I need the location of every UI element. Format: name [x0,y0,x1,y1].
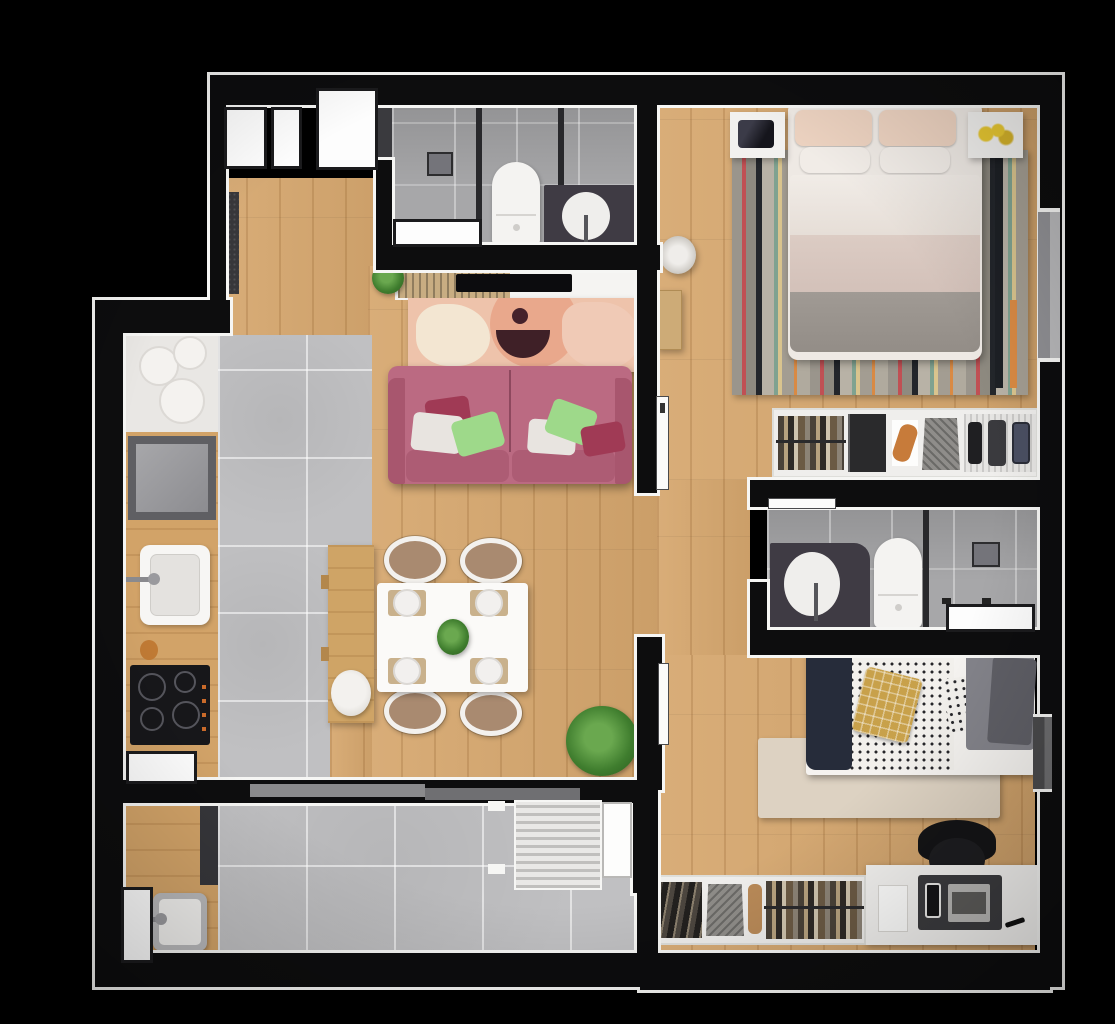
wall [95,953,645,987]
entry-window-2 [271,107,302,169]
door-handle [660,403,665,413]
master-window-glass [1038,208,1060,362]
wall [95,300,123,987]
wall [640,953,1050,990]
bedroom2-door-leaf [658,663,669,745]
wall [637,103,657,493]
master-door-leaf [656,396,669,490]
bathroom2-window [946,604,1035,632]
entry-window-1 [224,107,267,169]
door-frame-stub [488,801,505,811]
sliding-door-panel [250,784,425,797]
louver-side-panel [602,802,632,878]
wall [750,630,1040,655]
louver-window [514,800,602,890]
wall [376,160,392,252]
kitchen-pass-window [126,751,197,784]
laundry-window [121,887,153,963]
wall [376,245,660,270]
bathroom2-door-leaf [768,498,836,509]
entry-door-opening [316,88,378,170]
door-frame-stub [488,864,505,874]
wall [633,782,658,893]
floor-plan [0,0,1115,1024]
sliding-door-panel [425,788,580,800]
bathroom1-niche [393,219,482,247]
bedroom2-window-glass [1033,714,1052,792]
